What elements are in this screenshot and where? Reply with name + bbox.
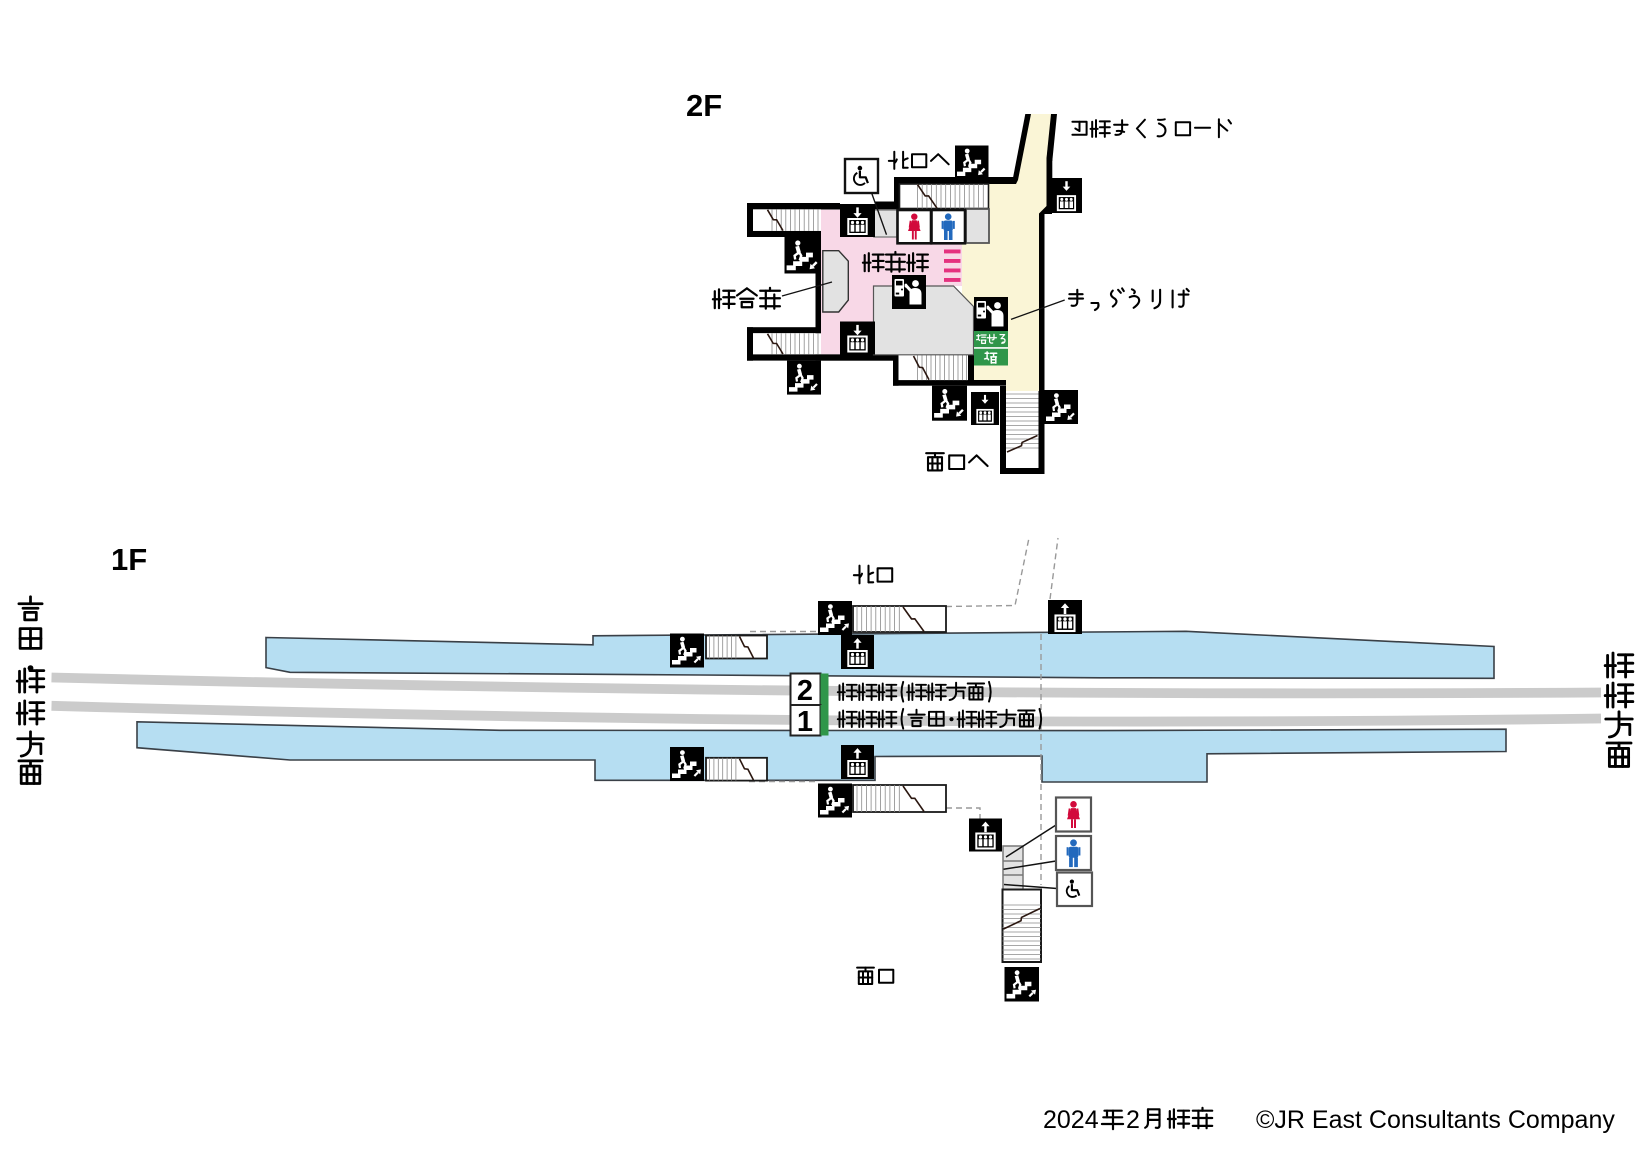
svg-text:1F: 1F [111,542,147,577]
svg-text:1: 1 [797,706,813,738]
svg-text:2F: 2F [686,88,722,123]
svg-text:2: 2 [1126,1106,1140,1134]
svg-text:©JR East Consultants Company: ©JR East Consultants Company [1256,1106,1615,1134]
svg-text:2: 2 [797,675,813,707]
svg-text:2024: 2024 [1043,1106,1099,1134]
